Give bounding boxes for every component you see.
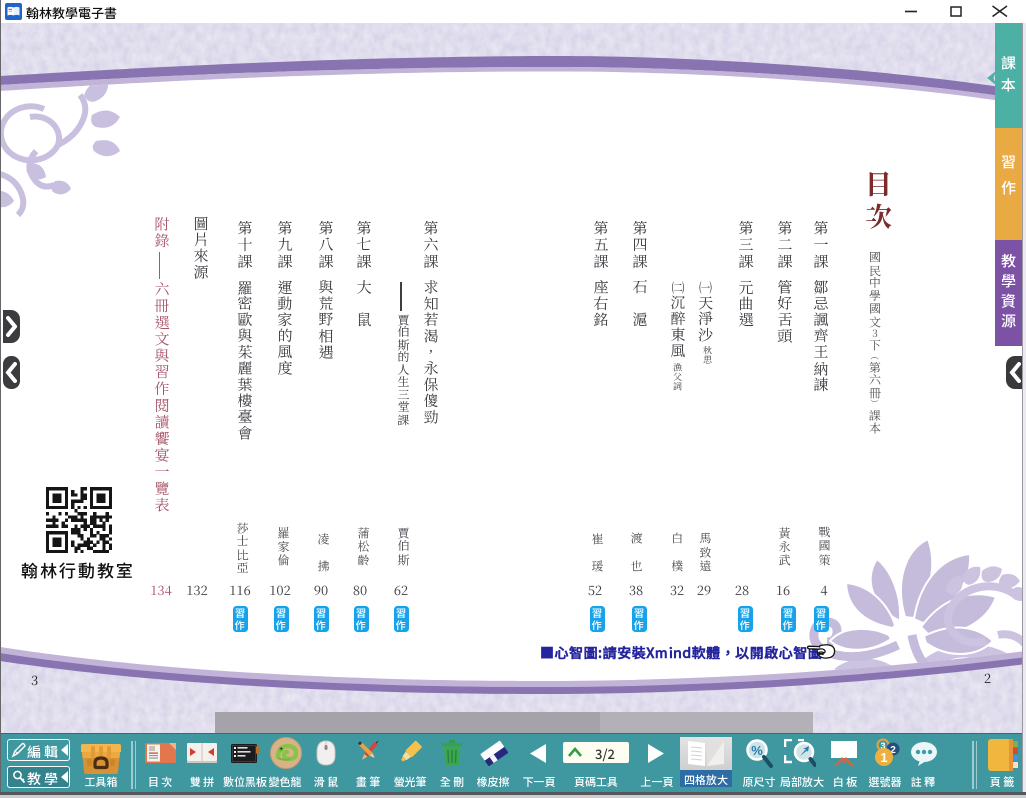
svg-text:%: %: [751, 743, 763, 758]
svg-text:1: 1: [880, 750, 887, 765]
